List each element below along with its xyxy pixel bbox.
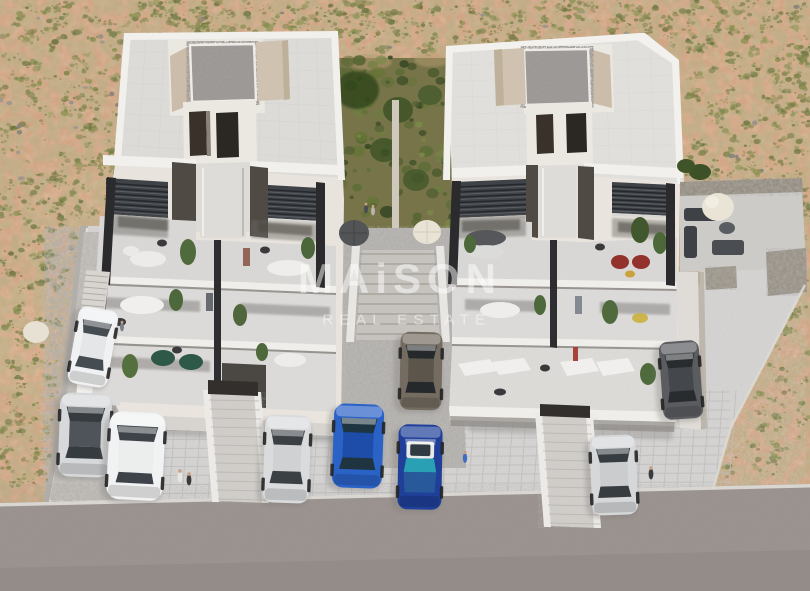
svg-text:MAiSON: MAiSON [298, 255, 502, 302]
svg-text:REAL ESTATE: REAL ESTATE [322, 312, 491, 329]
